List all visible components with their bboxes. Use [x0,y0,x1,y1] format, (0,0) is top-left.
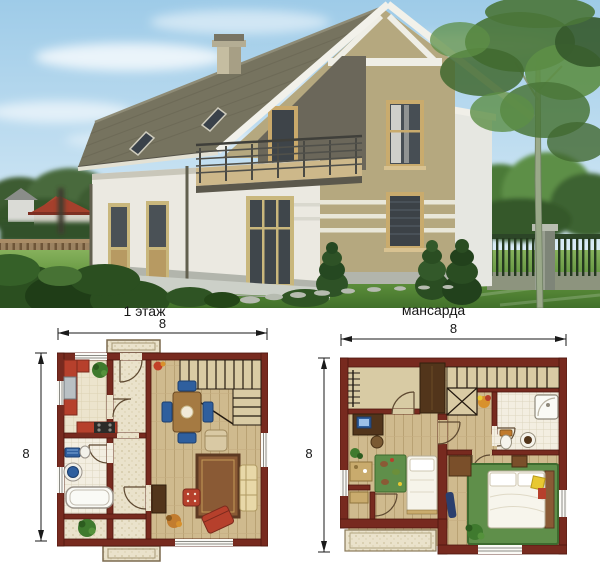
lower-window [384,192,426,252]
shower [535,395,558,419]
tv-stand [152,485,166,513]
double-bed [488,471,554,528]
shelf [350,492,368,503]
attic-sink [521,433,536,448]
tall-window [246,196,294,288]
attic-plan-drawing [340,352,567,558]
floor1-height-label: 8 [18,447,34,460]
closet [420,363,445,413]
floor1-plan-drawing [57,337,268,563]
hall-plant [78,519,96,537]
bathroom-sink [64,463,82,481]
desk-chair [371,436,383,448]
rug [197,455,239,517]
dresser [449,456,471,476]
house-photo [0,0,600,308]
stair-landing [447,388,477,415]
pouf [183,489,200,506]
attic-width-dimension [340,334,567,346]
dresser-left [350,462,372,481]
computer [357,417,371,428]
side-table [512,456,527,467]
attic-toilet [500,430,512,449]
toilet [65,446,90,458]
armchair [205,430,227,451]
entry-vestibule [107,340,160,353]
upper-window [384,100,426,170]
couch [240,465,257,511]
stove [94,422,115,433]
floor1-height-dimension [35,352,47,542]
bathtub [66,487,113,508]
attic-height-dimension [318,357,330,553]
rear-porch [103,546,160,561]
house-project-image: 1 этаж 8 8 [0,0,600,564]
kitchen-plant [92,362,108,378]
attic-height-label: 8 [301,447,317,460]
chimney [212,34,246,74]
play-rug [375,455,406,492]
attic-title: мансарда [340,303,567,318]
terrace [345,530,436,551]
single-bed [407,456,437,514]
